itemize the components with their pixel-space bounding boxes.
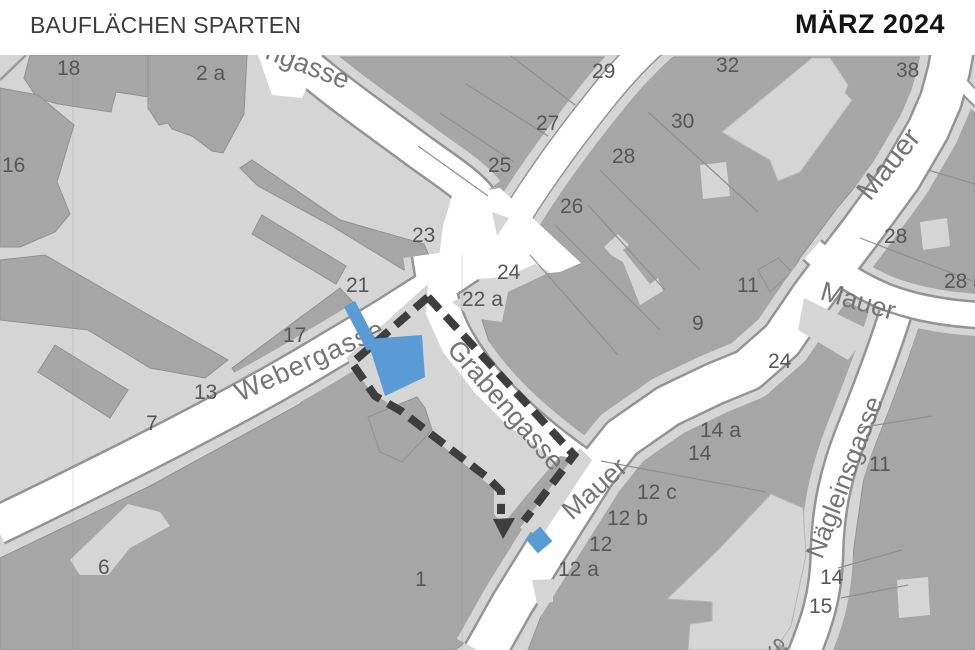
svg-text:17: 17 [283, 324, 306, 347]
svg-text:13: 13 [194, 381, 217, 404]
svg-text:25: 25 [488, 154, 511, 177]
svg-text:6: 6 [98, 556, 110, 579]
svg-text:27: 27 [536, 112, 559, 135]
svg-text:1: 1 [415, 568, 427, 591]
svg-text:28 a: 28 a [944, 270, 975, 293]
svg-text:12 c: 12 c [637, 481, 677, 504]
svg-text:11: 11 [737, 274, 759, 297]
svg-text:14: 14 [688, 442, 712, 465]
svg-text:26: 26 [560, 195, 583, 218]
svg-text:18: 18 [57, 57, 80, 80]
svg-text:30: 30 [671, 110, 694, 133]
svg-text:12 b: 12 b [607, 507, 648, 530]
svg-text:28: 28 [612, 145, 635, 168]
svg-text:12 a: 12 a [558, 558, 599, 581]
svg-text:24: 24 [768, 350, 792, 373]
svg-text:15: 15 [809, 595, 832, 618]
svg-text:29: 29 [592, 60, 615, 83]
svg-text:28: 28 [884, 225, 907, 248]
svg-text:7: 7 [146, 412, 158, 435]
svg-text:9: 9 [692, 312, 704, 335]
svg-text:11: 11 [869, 453, 891, 476]
svg-text:BAUFLÄCHEN SPARTEN: BAUFLÄCHEN SPARTEN [30, 12, 301, 38]
svg-text:MÄRZ 2024: MÄRZ 2024 [795, 9, 945, 39]
svg-text:23: 23 [412, 224, 435, 247]
svg-text:21: 21 [346, 274, 369, 297]
svg-text:2 a: 2 a [196, 62, 226, 85]
svg-text:22 a: 22 a [462, 288, 503, 311]
svg-text:24: 24 [497, 261, 521, 284]
svg-text:32: 32 [716, 54, 739, 77]
svg-text:14 a: 14 a [700, 419, 741, 442]
svg-text:38: 38 [896, 59, 919, 82]
svg-text:16: 16 [2, 154, 25, 177]
svg-text:12: 12 [589, 533, 612, 556]
svg-text:14: 14 [820, 566, 844, 589]
